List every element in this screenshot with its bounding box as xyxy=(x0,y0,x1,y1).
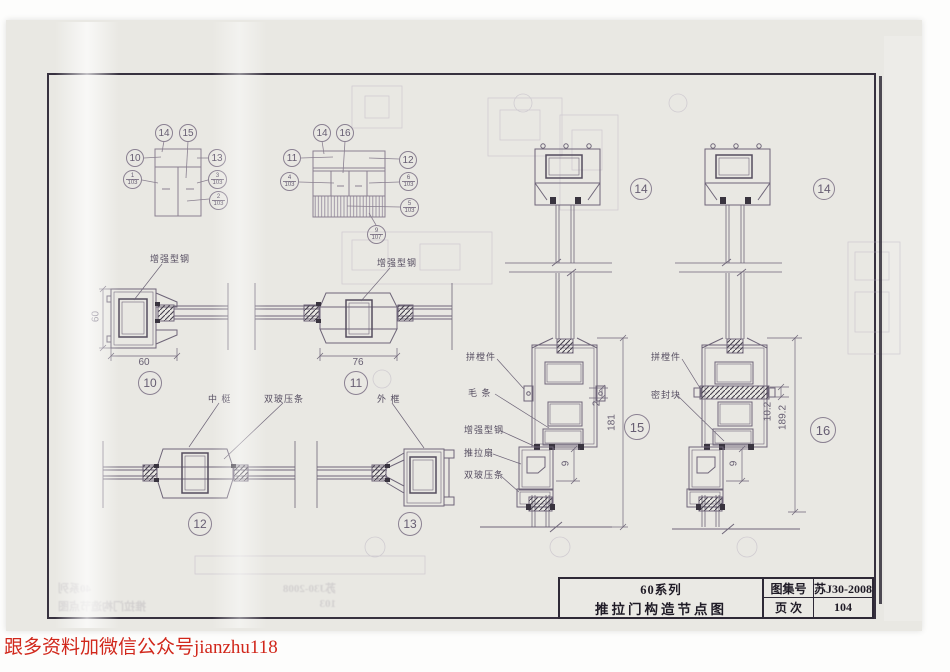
detail-number-16: 16 xyxy=(810,417,836,443)
title-block-title-cell: 60系列 推拉门构造节点图 xyxy=(560,579,764,617)
title-block-grid: 图集号 苏J30-2008 页 次 104 xyxy=(764,579,872,617)
callout-10: 10 xyxy=(126,149,144,167)
detail-number-14-right: 14 xyxy=(813,178,835,200)
label-sliding-sash: 推拉扇 xyxy=(464,446,494,459)
callout-12: 12 xyxy=(399,151,417,169)
watermark-text: 跟多资料加微信公众号jianzhu118 xyxy=(4,632,278,659)
callout-14: 14 xyxy=(155,124,173,142)
detail-ref-9-107: 9 107 xyxy=(367,225,386,244)
title-block: 60系列 推拉门构造节点图 图集号 苏J30-2008 页 次 104 xyxy=(558,577,874,619)
dim-s15-2: 2 xyxy=(592,384,603,424)
label-brush-seal: 毛 条 xyxy=(468,386,492,399)
callout-14b: 14 xyxy=(313,124,331,142)
detail-13-profile xyxy=(317,403,454,508)
schematic-2-drawing xyxy=(299,141,400,225)
page-number-label: 页 次 xyxy=(764,598,814,617)
atlas-number-value: 苏J30-2008 xyxy=(814,579,872,598)
dim-s15-181: 181 xyxy=(607,403,618,443)
detail-number-11: 11 xyxy=(344,371,368,395)
ref-den: 103 xyxy=(126,179,138,186)
schematic-1-drawing xyxy=(142,141,209,216)
ref-den: 107 xyxy=(370,234,382,241)
label-connector-s16: 拼樘件 xyxy=(651,350,681,363)
page-number-value: 104 xyxy=(814,598,872,617)
sheet-title: 推拉门构造节点图 xyxy=(560,598,762,618)
detail-ref-1-103: 1 103 xyxy=(123,170,142,189)
callout-16: 16 xyxy=(336,124,354,142)
detail-number-10: 10 xyxy=(138,371,162,395)
detail-number-12: 12 xyxy=(188,512,212,536)
series-title: 60系列 xyxy=(560,579,762,598)
detail-ref-6-103: 6 103 xyxy=(399,172,418,191)
label-reinforced-steel-d11: 增强型钢 xyxy=(377,256,417,269)
callout-11: 11 xyxy=(283,149,301,167)
label-outer-frame: 外 框 xyxy=(377,392,401,405)
atlas-number-label: 图集号 xyxy=(764,579,814,598)
detail-10-profile xyxy=(99,264,228,361)
scanned-drawing-sheet: { "watermark": "跟多资料加微信公众号jianzhu118", "… xyxy=(0,0,950,672)
dim-d11-width: 76 xyxy=(343,357,373,368)
dim-s16-10-2: 10.2 xyxy=(763,392,774,432)
detail-number-15: 15 xyxy=(624,414,650,440)
detail-12-profile xyxy=(103,403,295,508)
label-glazing-bead-s15: 双玻压条 xyxy=(464,468,504,481)
ref-den: 103 xyxy=(212,200,224,207)
detail-ref-2-103: 2 103 xyxy=(209,191,228,210)
dim-s16-189-2: 189.2 xyxy=(778,398,789,438)
label-glazing-bead-d12: 双玻压条 xyxy=(264,392,304,405)
detail-number-13: 13 xyxy=(398,512,422,536)
label-seal-block: 密封块 xyxy=(651,388,681,401)
detail-11-profile xyxy=(255,268,452,361)
label-reinforced-steel-d10: 增强型钢 xyxy=(150,252,190,265)
ref-den: 103 xyxy=(402,181,414,188)
detail-ref-5-103: 5 103 xyxy=(400,198,419,217)
ref-den: 103 xyxy=(283,181,295,188)
ref-den: 103 xyxy=(211,179,223,186)
label-connector-s15: 拼樘件 xyxy=(466,350,496,363)
drawing-linework xyxy=(0,0,950,672)
dim-d10-height: 60 xyxy=(91,297,102,337)
dim-s16-9: 9 xyxy=(729,444,740,484)
dim-d10-width: 60 xyxy=(129,357,159,368)
page-edge-shadow xyxy=(879,76,882,604)
callout-15: 15 xyxy=(179,124,197,142)
detail-ref-4-103: 4 103 xyxy=(280,172,299,191)
ref-den: 103 xyxy=(403,207,415,214)
label-mullion: 中 梃 xyxy=(208,392,232,405)
detail-ref-3-103: 3 103 xyxy=(208,170,227,189)
dim-s15-9: 9 xyxy=(561,444,572,484)
detail-number-14-left: 14 xyxy=(630,178,652,200)
callout-13: 13 xyxy=(208,149,226,167)
label-reinforced-steel-s15: 增强型钢 xyxy=(464,423,504,436)
